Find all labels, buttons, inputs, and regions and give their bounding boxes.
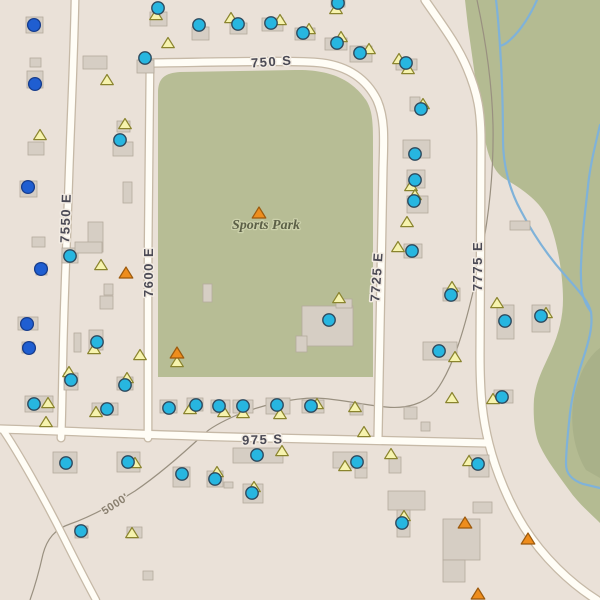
marker-point-blue[interactable] [23, 342, 36, 355]
marker-point-cyan[interactable] [400, 57, 412, 69]
building [74, 333, 81, 352]
marker-point-cyan[interactable] [332, 0, 344, 9]
street-label-975-s: 975 S [242, 431, 284, 447]
map-canvas[interactable]: 750 S 975 S 7550 E 7600 E 7725 E 7775 E … [0, 0, 600, 600]
marker-point-cyan[interactable] [152, 2, 164, 14]
marker-point-cyan[interactable] [271, 399, 283, 411]
building [28, 142, 44, 155]
marker-point-cyan[interactable] [122, 456, 134, 468]
marker-point-cyan[interactable] [396, 517, 408, 529]
marker-point-cyan[interactable] [75, 525, 87, 537]
marker-point-blue[interactable] [28, 19, 41, 32]
marker-point-cyan[interactable] [297, 27, 309, 39]
marker-point-cyan[interactable] [190, 399, 202, 411]
marker-point-cyan[interactable] [351, 456, 363, 468]
street-label-7550-e: 7550 E [57, 192, 74, 243]
street-label-7775-e: 7775 E [470, 241, 485, 291]
building [30, 58, 41, 67]
marker-point-cyan[interactable] [163, 402, 175, 414]
building [203, 284, 212, 302]
marker-point-blue[interactable] [35, 263, 48, 276]
marker-point-cyan[interactable] [406, 245, 418, 257]
marker-point-cyan[interactable] [323, 314, 335, 326]
marker-point-cyan[interactable] [415, 103, 427, 115]
marker-point-cyan[interactable] [305, 400, 317, 412]
building [404, 407, 417, 419]
building [473, 502, 492, 513]
marker-point-cyan[interactable] [119, 379, 131, 391]
marker-point-cyan[interactable] [331, 37, 343, 49]
street-label-7600-e: 7600 E [141, 247, 156, 297]
building [83, 56, 107, 69]
building [143, 571, 153, 580]
marker-point-cyan[interactable] [193, 19, 205, 31]
marker-point-cyan[interactable] [232, 18, 244, 30]
marker-point-cyan[interactable] [139, 52, 151, 64]
building [100, 296, 113, 309]
marker-point-cyan[interactable] [409, 148, 421, 160]
marker-point-blue[interactable] [29, 78, 42, 91]
building [104, 284, 113, 295]
marker-point-cyan[interactable] [246, 487, 258, 499]
marker-point-cyan[interactable] [114, 134, 126, 146]
marker-point-cyan[interactable] [496, 391, 508, 403]
marker-point-cyan[interactable] [354, 47, 366, 59]
building [32, 237, 45, 247]
marker-point-cyan[interactable] [408, 195, 420, 207]
building [389, 457, 401, 473]
marker-point-blue[interactable] [22, 181, 35, 194]
marker-point-cyan[interactable] [60, 457, 72, 469]
map-svg: 750 S 975 S 7550 E 7600 E 7725 E 7775 E … [0, 0, 600, 600]
street-label-750-s: 750 S [250, 53, 292, 71]
marker-point-cyan[interactable] [251, 449, 263, 461]
building [388, 491, 425, 510]
building [355, 468, 367, 478]
marker-point-cyan[interactable] [176, 468, 188, 480]
marker-point-cyan[interactable] [213, 400, 225, 412]
building [224, 482, 233, 488]
marker-point-cyan[interactable] [101, 403, 113, 415]
marker-point-cyan[interactable] [65, 374, 77, 386]
building [510, 221, 530, 230]
marker-point-cyan[interactable] [535, 310, 547, 322]
building [296, 336, 307, 352]
marker-point-cyan[interactable] [28, 398, 40, 410]
park-name-label: Sports Park [232, 218, 300, 233]
marker-point-cyan[interactable] [91, 336, 103, 348]
building [75, 242, 102, 253]
marker-point-cyan[interactable] [237, 400, 249, 412]
marker-point-cyan[interactable] [472, 458, 484, 470]
marker-point-cyan[interactable] [265, 17, 277, 29]
marker-point-blue[interactable] [21, 318, 34, 331]
building [443, 560, 465, 582]
building [123, 182, 132, 203]
marker-point-cyan[interactable] [64, 250, 76, 262]
marker-point-cyan[interactable] [445, 289, 457, 301]
building [421, 422, 430, 431]
marker-point-cyan[interactable] [209, 473, 221, 485]
marker-point-cyan[interactable] [433, 345, 445, 357]
marker-point-cyan[interactable] [409, 174, 421, 186]
marker-point-cyan[interactable] [499, 315, 511, 327]
